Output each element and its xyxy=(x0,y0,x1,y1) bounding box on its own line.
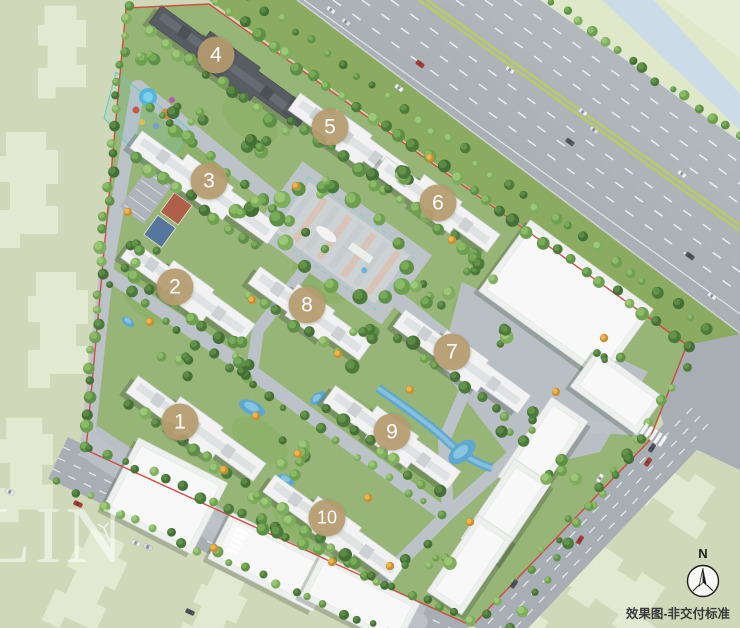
building-marker-10: 10 xyxy=(309,500,346,537)
tree xyxy=(420,296,432,308)
tree xyxy=(345,192,361,208)
tree xyxy=(369,180,381,192)
tree xyxy=(279,436,287,444)
tree xyxy=(182,371,192,381)
tree xyxy=(123,399,133,409)
tree xyxy=(386,474,394,482)
tree xyxy=(98,269,109,280)
tree xyxy=(279,14,287,22)
tree xyxy=(506,213,520,227)
tree xyxy=(420,354,429,363)
tree xyxy=(199,205,210,216)
tree xyxy=(442,286,455,299)
tree xyxy=(486,172,494,180)
tree xyxy=(109,149,118,158)
tree xyxy=(472,160,480,168)
tree xyxy=(209,348,219,358)
tree xyxy=(190,340,201,351)
compass: N xyxy=(684,546,722,600)
tree xyxy=(488,274,498,284)
tree xyxy=(556,465,567,476)
tree xyxy=(106,281,113,288)
tree xyxy=(500,325,511,336)
tree xyxy=(105,196,115,206)
tree xyxy=(531,589,538,596)
autumn-tree xyxy=(124,208,132,216)
tree xyxy=(574,16,583,25)
tree xyxy=(159,112,166,119)
tree xyxy=(257,513,267,523)
tree xyxy=(319,600,327,608)
tree xyxy=(564,7,572,15)
tree xyxy=(280,405,286,411)
tree xyxy=(721,121,730,130)
tree xyxy=(252,28,266,42)
tree xyxy=(223,504,234,515)
autumn-tree xyxy=(292,182,300,190)
tree xyxy=(260,298,271,309)
tree xyxy=(434,485,446,497)
tree xyxy=(303,593,310,600)
tree xyxy=(130,152,142,164)
tree xyxy=(683,363,692,372)
tree xyxy=(142,164,156,178)
tree xyxy=(97,224,107,234)
tree xyxy=(237,366,247,376)
tree xyxy=(540,473,552,485)
tree xyxy=(260,497,272,509)
tree xyxy=(102,182,112,192)
tree xyxy=(225,8,234,17)
tree xyxy=(115,61,123,69)
tree xyxy=(435,603,444,612)
building-marker-6: 6 xyxy=(420,185,457,222)
tree xyxy=(184,53,197,66)
building-marker-9: 9 xyxy=(374,414,411,451)
tree xyxy=(93,241,106,254)
tree xyxy=(500,412,510,422)
tree xyxy=(611,256,623,268)
tree xyxy=(157,172,170,185)
autumn-tree xyxy=(364,494,372,502)
tree xyxy=(410,280,422,292)
building-marker-7: 7 xyxy=(434,334,471,371)
tree xyxy=(517,606,529,618)
tree xyxy=(370,620,377,627)
site-plan-rendering: 12345678910 LIN N 效果图-非交付标准 xyxy=(0,0,740,628)
tree xyxy=(401,562,408,569)
tree xyxy=(613,285,623,295)
tree xyxy=(443,556,457,570)
tree xyxy=(72,489,81,498)
tree xyxy=(146,103,155,112)
tree xyxy=(629,57,637,65)
autumn-tree xyxy=(426,154,434,162)
tree xyxy=(249,381,257,389)
tree xyxy=(414,116,425,127)
tree xyxy=(495,425,507,437)
autumn-tree xyxy=(252,412,260,420)
tree xyxy=(139,407,152,420)
tree xyxy=(93,291,102,300)
tree xyxy=(120,47,130,57)
tree xyxy=(624,454,635,465)
tree xyxy=(107,139,116,148)
tree xyxy=(269,41,281,53)
tree xyxy=(131,515,140,524)
tree xyxy=(538,546,545,553)
tree xyxy=(338,150,350,162)
tree xyxy=(184,355,194,365)
tree xyxy=(578,231,588,241)
tree xyxy=(385,92,393,100)
tree xyxy=(290,63,303,76)
tree xyxy=(345,359,359,373)
tree xyxy=(82,409,93,420)
tree xyxy=(126,286,138,298)
tree xyxy=(167,528,176,537)
tree xyxy=(432,554,439,561)
tree xyxy=(638,278,645,285)
tree xyxy=(240,16,251,27)
tree xyxy=(213,332,225,344)
tree xyxy=(259,570,267,578)
tree xyxy=(572,518,582,528)
tree xyxy=(493,597,502,606)
tree xyxy=(269,210,285,226)
tree xyxy=(316,423,327,434)
tree xyxy=(637,62,648,73)
tree xyxy=(321,245,330,254)
autumn-tree xyxy=(248,296,256,304)
tree xyxy=(650,77,659,86)
north-arrow-icon xyxy=(684,562,722,600)
building-marker-4: 4 xyxy=(198,37,235,74)
tree xyxy=(553,554,560,561)
tree xyxy=(149,467,158,476)
tree xyxy=(251,241,260,250)
building-marker-8: 8 xyxy=(289,287,326,324)
tree xyxy=(593,349,601,357)
tree xyxy=(307,35,315,43)
tree xyxy=(112,78,120,86)
tree xyxy=(245,134,257,146)
tree xyxy=(616,353,626,363)
tree xyxy=(565,515,572,522)
tree xyxy=(178,481,189,492)
tree xyxy=(400,104,410,114)
building-marker-2: 2 xyxy=(157,269,194,306)
tree xyxy=(494,206,505,217)
tree xyxy=(128,270,142,284)
tree xyxy=(444,133,454,143)
tree xyxy=(271,579,280,588)
tree xyxy=(161,474,171,484)
tree xyxy=(556,537,562,543)
tree xyxy=(584,501,594,511)
tree xyxy=(86,376,94,384)
tree xyxy=(256,523,269,536)
tree xyxy=(102,450,112,460)
tree xyxy=(186,313,198,325)
tree xyxy=(651,316,661,326)
tree xyxy=(459,381,472,394)
tree xyxy=(206,151,216,161)
tree xyxy=(337,413,351,427)
tree xyxy=(393,237,405,249)
tree xyxy=(403,470,413,480)
tree xyxy=(141,299,150,308)
tree xyxy=(679,90,689,100)
tree xyxy=(367,572,376,581)
tree xyxy=(233,357,245,369)
tree xyxy=(456,242,470,256)
tree xyxy=(625,299,635,309)
tree xyxy=(116,510,125,519)
tree xyxy=(438,510,447,519)
tree xyxy=(85,445,92,452)
tree xyxy=(358,327,368,337)
tree xyxy=(528,427,535,434)
tree xyxy=(349,557,361,569)
autumn-tree xyxy=(466,518,474,526)
tree xyxy=(695,104,704,113)
tree xyxy=(209,463,220,474)
tree xyxy=(93,306,101,314)
autumn-tree xyxy=(294,450,302,458)
tree xyxy=(601,37,611,47)
tree xyxy=(274,191,291,208)
tree xyxy=(324,50,331,57)
tree xyxy=(322,404,331,413)
tree xyxy=(687,314,694,321)
tree xyxy=(399,260,414,275)
tree xyxy=(432,224,443,235)
tree xyxy=(299,124,310,135)
tree xyxy=(465,616,476,627)
tree xyxy=(556,454,568,466)
tree xyxy=(592,241,603,252)
tree xyxy=(264,391,274,401)
tree xyxy=(529,203,540,214)
tree xyxy=(338,92,347,101)
tree xyxy=(562,538,574,550)
tree xyxy=(423,540,432,549)
tree xyxy=(587,26,598,37)
tree xyxy=(417,480,426,489)
tree xyxy=(353,73,360,80)
tree xyxy=(450,608,458,616)
tree xyxy=(408,591,418,601)
tree xyxy=(217,76,229,88)
tree xyxy=(450,371,461,382)
tree xyxy=(570,473,583,486)
tree xyxy=(237,509,247,519)
tree xyxy=(145,25,157,37)
tree xyxy=(308,70,319,81)
tree xyxy=(460,143,470,153)
tree xyxy=(668,384,676,392)
tree xyxy=(425,561,433,569)
tree xyxy=(378,290,392,304)
tree xyxy=(537,237,550,250)
tree xyxy=(528,566,536,574)
tree xyxy=(369,81,376,88)
tree xyxy=(393,334,402,343)
tree xyxy=(397,166,411,180)
tree xyxy=(161,39,172,50)
autumn-tree xyxy=(386,562,394,570)
tree xyxy=(153,247,161,255)
tree xyxy=(420,498,426,504)
tree xyxy=(635,307,649,321)
tree xyxy=(519,191,527,199)
tree xyxy=(352,289,367,304)
tree xyxy=(263,113,277,127)
tree xyxy=(121,13,132,24)
autumn-tree xyxy=(210,544,218,552)
tree xyxy=(301,228,310,237)
tree xyxy=(701,323,713,335)
tree xyxy=(551,213,562,224)
tree xyxy=(157,352,167,362)
tree xyxy=(332,437,340,445)
tree xyxy=(324,279,339,294)
tree xyxy=(384,185,392,193)
tree xyxy=(406,335,420,349)
tree xyxy=(477,392,487,402)
tree xyxy=(349,328,357,336)
master-plan-scene xyxy=(0,0,740,628)
tree xyxy=(406,138,419,151)
tree xyxy=(564,221,572,229)
tree xyxy=(226,86,238,98)
tree xyxy=(504,180,514,190)
tree xyxy=(181,130,195,144)
tree xyxy=(276,502,289,515)
compass-north-label: N xyxy=(698,546,707,561)
tree xyxy=(282,127,291,136)
tree xyxy=(424,595,433,604)
tree xyxy=(438,160,451,173)
tree xyxy=(339,60,348,69)
tree xyxy=(162,318,169,325)
tree xyxy=(626,269,635,278)
tree xyxy=(298,260,311,273)
autumn-tree xyxy=(328,558,336,566)
building-marker-1: 1 xyxy=(162,404,199,441)
tree xyxy=(112,105,121,114)
tree xyxy=(354,454,361,461)
tree xyxy=(122,458,129,465)
tree xyxy=(86,346,94,354)
autumn-tree xyxy=(220,466,228,474)
tree xyxy=(289,469,300,480)
tree xyxy=(304,326,315,337)
tree xyxy=(339,610,349,620)
tree xyxy=(207,213,219,225)
tree xyxy=(566,254,576,264)
tree xyxy=(202,451,212,461)
tree xyxy=(194,492,206,504)
tree xyxy=(293,588,301,596)
tree xyxy=(97,256,107,266)
tree xyxy=(392,129,405,142)
tree xyxy=(297,538,309,550)
tree xyxy=(470,186,479,195)
tree xyxy=(236,336,248,348)
tree xyxy=(89,331,101,343)
tree xyxy=(283,515,296,528)
tree xyxy=(313,544,325,556)
tree xyxy=(80,419,93,432)
tree xyxy=(280,47,293,60)
tree xyxy=(193,547,201,555)
tree xyxy=(83,363,95,375)
tree xyxy=(553,244,563,254)
tree xyxy=(318,336,329,347)
tree xyxy=(84,391,97,404)
tree xyxy=(652,287,664,299)
tree xyxy=(673,298,684,309)
tree xyxy=(350,426,360,436)
tree xyxy=(166,119,174,127)
tree xyxy=(380,581,389,590)
tree xyxy=(236,208,246,218)
building-marker-3: 3 xyxy=(191,163,228,200)
tree xyxy=(353,616,361,624)
tree xyxy=(174,103,182,111)
autumn-tree xyxy=(406,386,414,394)
tree xyxy=(173,326,181,334)
autumn-tree xyxy=(448,236,456,244)
tree xyxy=(405,489,413,497)
tree xyxy=(130,465,139,474)
tree xyxy=(93,319,104,330)
tree xyxy=(187,443,200,456)
tree xyxy=(668,331,681,344)
building-marker-5: 5 xyxy=(312,109,349,146)
tree xyxy=(368,112,381,125)
tree xyxy=(656,395,667,406)
tree xyxy=(240,180,250,190)
tree xyxy=(241,478,251,488)
tree xyxy=(321,81,331,91)
tree xyxy=(612,471,620,479)
tree xyxy=(287,117,296,126)
tree xyxy=(225,559,232,566)
tree xyxy=(111,91,119,99)
tree xyxy=(250,196,262,208)
tree xyxy=(427,128,436,137)
tree xyxy=(368,460,378,470)
tree xyxy=(176,538,186,548)
tree xyxy=(136,52,143,59)
tree xyxy=(481,195,492,206)
tree xyxy=(188,118,196,126)
tree xyxy=(437,301,446,310)
tree xyxy=(109,121,120,132)
tree xyxy=(300,411,310,421)
tree xyxy=(582,267,592,277)
tree xyxy=(171,182,182,193)
tree xyxy=(707,113,718,124)
tree xyxy=(381,121,392,132)
tree xyxy=(98,212,108,222)
tree xyxy=(239,93,249,103)
tree xyxy=(482,609,491,618)
tree xyxy=(151,418,160,427)
